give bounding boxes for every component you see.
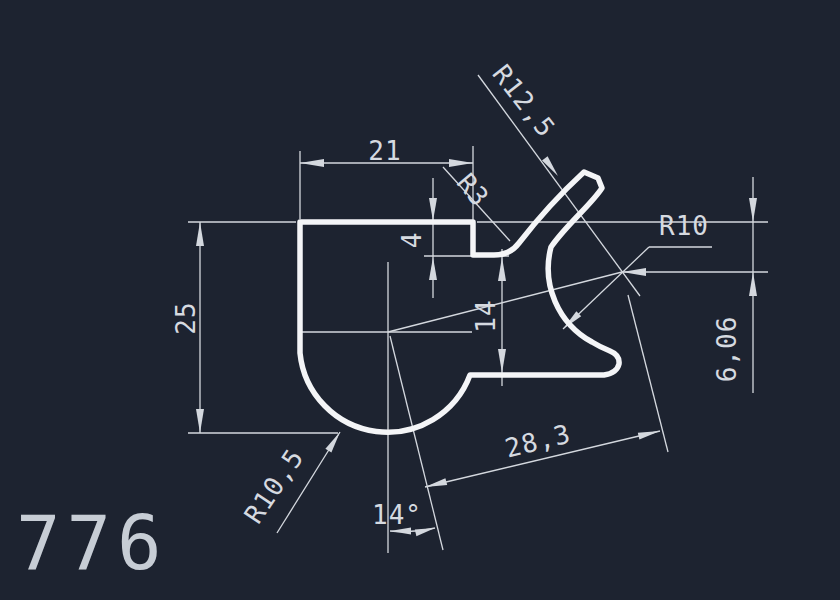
cad-drawing-canvas: 21 25 4 14 R3 R12,5 R10 6,06 28,3 R10,5 … [0, 0, 840, 600]
dim-label-25: 25 [173, 301, 199, 334]
arrow-14-bottom [498, 349, 506, 373]
arrow-21-right [449, 159, 473, 167]
dim-label-angle: 14° [372, 502, 422, 528]
arrow-r105 [325, 432, 340, 453]
arrow-606-top [749, 198, 757, 222]
arrow-4-upper [429, 198, 437, 221]
arrow-25-top [196, 222, 204, 246]
dim-label-606: 6,06 [714, 316, 740, 383]
arrow-4-lower [429, 257, 437, 280]
arrow-283-left [425, 478, 447, 487]
arrow-606-bottom [749, 272, 757, 296]
arrow-14-top [498, 257, 506, 281]
arrow-21-left [300, 159, 324, 167]
ext-line-283-right [628, 295, 668, 452]
arrow-25-bottom [196, 409, 204, 433]
dim-label-r10: R10 [659, 213, 709, 239]
dim-label-4: 4 [399, 232, 425, 249]
arrow-283-right [638, 431, 660, 440]
dim-label-21: 21 [368, 138, 401, 164]
part-number: 776 [16, 506, 168, 580]
profile-outline [300, 172, 619, 432]
dim-label-14: 14 [473, 299, 499, 332]
